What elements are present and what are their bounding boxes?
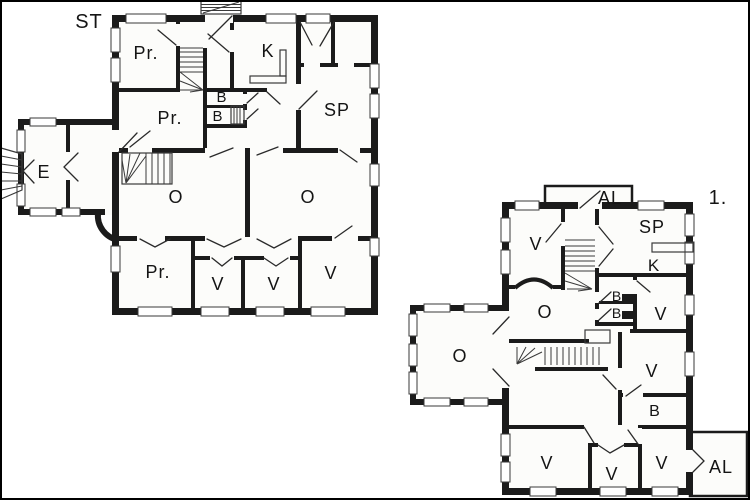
room-label-v-nw: V [529,234,542,254]
room-label-al-top: AL [598,188,622,208]
room-label-pr-bottom: Pr. [145,262,170,282]
room-label-v-sw: V [540,453,553,473]
floor-label-1: 1. [709,187,728,209]
room-label-bath-upper: B [216,89,227,106]
room-label-pr-mid: Pr. [157,108,182,128]
room-label-v-mid: V [645,361,658,381]
room-label-v-se: V [655,453,668,473]
room-label-sp: SP [324,100,350,120]
room-label-o-west: O [452,346,467,366]
staircase-entrance-top [201,1,241,14]
room-label-sp: SP [639,217,665,237]
room-label-v3: V [324,263,337,283]
first-floor-plan: 1. AL V SP K B B V O O V B V V V AL [409,186,747,496]
room-label-bath-upper: B [612,288,622,304]
room-label-al-bottom: AL [709,457,733,477]
room-label-v-ne: V [654,304,667,324]
room-label-v-s: V [605,464,618,484]
floor-plan-drawing: ST Pr. K SP B B Pr. E O O Pr. V V V [0,0,750,500]
floor-plan-canvas: ST Pr. K SP B B Pr. E O O Pr. V V V [0,0,750,500]
room-label-bath-south: B [649,403,661,420]
room-label-kitchen: K [648,256,660,275]
room-label-o-center: O [537,302,552,322]
floor-label-st: ST [75,11,103,33]
room-label-pr-top: Pr. [133,43,158,63]
room-label-v2: V [267,274,280,294]
ground-floor-plan: ST Pr. K SP B B Pr. E O O Pr. V V V [1,1,379,316]
room-label-kitchen: K [261,41,274,61]
room-label-entry: E [37,162,50,182]
room-label-o-left: O [168,187,183,207]
room-label-bath-lower: B [212,108,223,125]
room-label-o-right: O [300,187,315,207]
room-label-v1: V [211,274,224,294]
room-label-bath-lower: B [612,305,622,321]
